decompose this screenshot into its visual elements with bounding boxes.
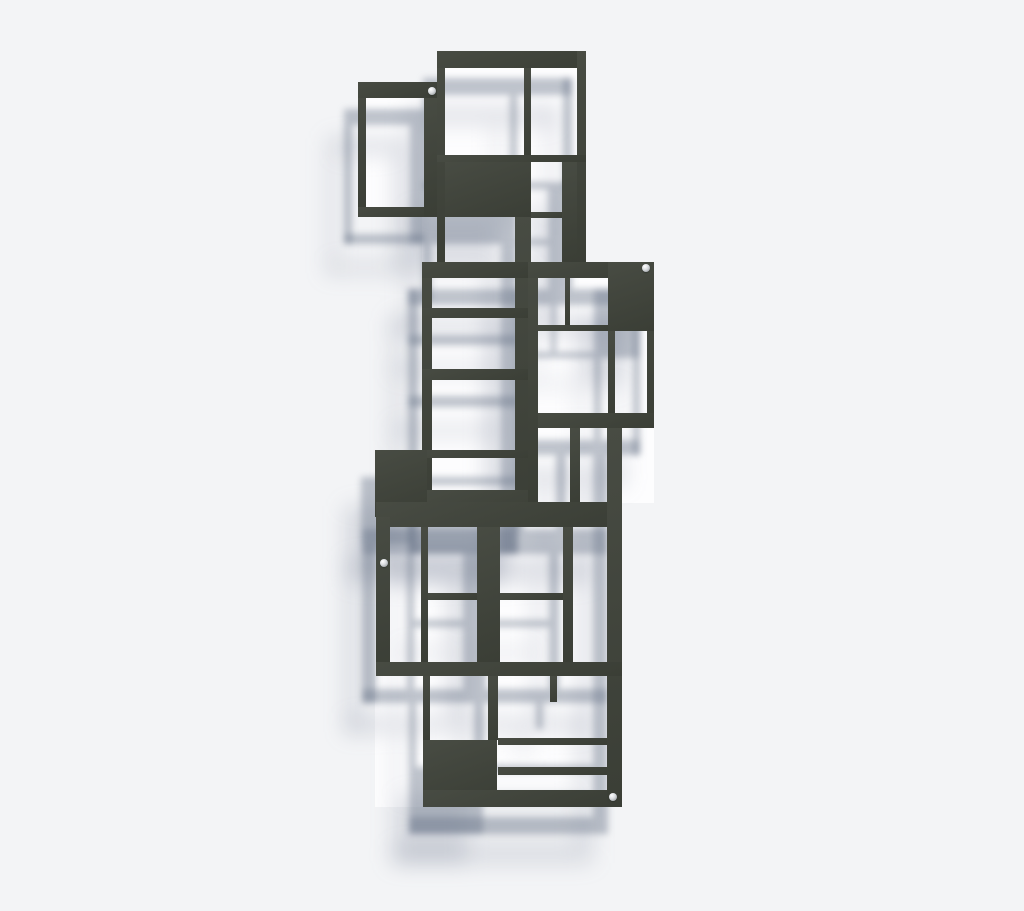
mounting-screw-bottom-right — [609, 793, 617, 801]
mounting-screw-bottom-left — [380, 559, 388, 567]
wall-art-sculpture — [0, 0, 1024, 911]
screws-layer — [0, 0, 1024, 911]
mounting-screw-right-panel — [642, 264, 650, 272]
mounting-screw-top-left — [428, 87, 436, 95]
scene-background — [0, 0, 1024, 911]
